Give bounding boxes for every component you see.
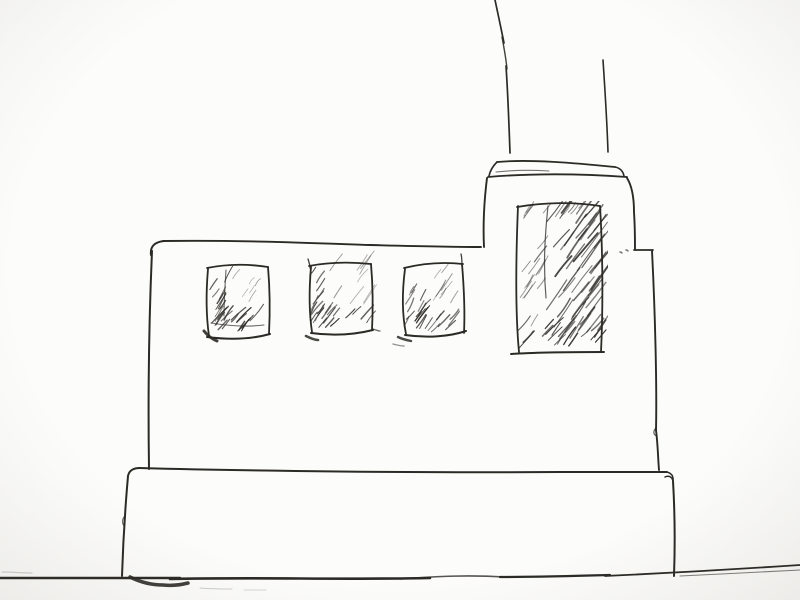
window2-hatch-bottom xyxy=(311,301,375,327)
hatch-stroke xyxy=(437,311,444,320)
ground-line-overlap xyxy=(400,576,505,579)
ground-line-far-right xyxy=(605,565,800,576)
building-right-wall xyxy=(652,251,656,430)
cap-right-edge xyxy=(615,167,624,176)
hatch-stroke xyxy=(436,280,446,296)
base-left-edge xyxy=(122,476,128,576)
tower-right-edge xyxy=(627,178,635,249)
ground-smudge-left xyxy=(2,572,32,573)
chimney-right-line xyxy=(603,60,608,152)
hatch-stroke xyxy=(250,285,255,293)
hatch-stroke xyxy=(210,279,217,290)
hatch-stroke xyxy=(556,186,578,217)
window1-corner-blob xyxy=(204,331,217,341)
ground-line-right xyxy=(500,575,610,577)
hatch-stroke xyxy=(446,321,456,330)
hatch-stroke xyxy=(572,266,592,293)
hatch-stroke xyxy=(255,279,260,286)
hatch-stroke xyxy=(573,302,586,321)
hatch-stroke xyxy=(442,264,449,273)
hatch-stroke xyxy=(564,268,580,291)
hatch-stroke xyxy=(249,278,254,285)
window2-corner-blob xyxy=(306,336,318,340)
hatch-stroke xyxy=(591,261,611,290)
window1-left-edge xyxy=(207,269,209,336)
stray-dot-1 xyxy=(620,252,622,253)
hatch-stroke xyxy=(334,286,342,298)
hatch-stroke xyxy=(537,278,545,289)
window2-left-edge xyxy=(310,267,312,332)
window3-bottom-edge xyxy=(405,331,466,337)
hatch-stroke xyxy=(364,285,377,305)
base-foot-smudge-1 xyxy=(200,588,232,589)
window1-hatch-upper-light xyxy=(233,270,261,302)
big-window-hatch-upper-dark xyxy=(555,182,616,276)
hatch-stroke xyxy=(250,304,264,321)
hatch-stroke xyxy=(555,256,571,276)
cap-inner-line xyxy=(496,170,549,172)
hatch-stroke xyxy=(525,275,535,288)
big-window-hatch-bottom-band xyxy=(518,316,606,348)
hatch-stroke xyxy=(564,327,576,345)
hatch-stroke xyxy=(233,270,240,279)
window1-bottom-edge xyxy=(207,334,270,339)
hatch-stroke xyxy=(242,289,248,297)
hatch-stroke xyxy=(451,291,458,303)
base-top-left-corner xyxy=(128,468,140,476)
cap-bottom-edge xyxy=(488,174,627,177)
window3-hatch-upper-light xyxy=(433,264,458,303)
hatch-stroke xyxy=(367,311,376,323)
window2-bottom-tick xyxy=(373,329,380,331)
base-right-edge xyxy=(673,481,675,576)
hatch-stroke xyxy=(224,306,233,320)
sketch-page xyxy=(0,0,800,600)
hatch-stroke xyxy=(547,192,568,221)
window2-hatch-upper-light xyxy=(330,251,377,304)
outline-strokes xyxy=(0,0,800,590)
hatch-stroke xyxy=(213,289,219,297)
hatch-stroke xyxy=(554,230,570,247)
big-window-bottom-edge xyxy=(511,352,604,354)
window3-under-mark xyxy=(393,344,404,346)
hatch-stroke xyxy=(518,316,530,331)
hatch-stroke xyxy=(361,305,373,319)
window1-right-edge xyxy=(268,267,270,334)
hatch-stroke xyxy=(587,296,602,316)
hatch-stroke xyxy=(547,280,567,310)
window3-hatch-bottom xyxy=(406,306,459,332)
cap-left-edge xyxy=(489,162,497,176)
stray-dot-2 xyxy=(626,250,628,251)
hatch-stroke xyxy=(543,325,553,336)
window1-hatch-left xyxy=(210,266,233,328)
hatch-stroke xyxy=(350,287,363,304)
chimney-left-line-upper xyxy=(495,0,504,43)
hatch-stroke xyxy=(358,269,368,282)
chimney-left-line-lower xyxy=(506,66,510,153)
hatch-stroke xyxy=(522,261,531,272)
big-window-inner-line xyxy=(545,206,548,298)
hatch-stroke xyxy=(526,202,534,213)
tower-left-edge xyxy=(484,178,487,247)
window2-right-edge xyxy=(371,264,373,330)
window3-top-edge xyxy=(404,263,463,268)
base-top-edge xyxy=(139,468,667,472)
hatch-stroke xyxy=(531,314,538,326)
hatch-stroke xyxy=(581,328,590,337)
window1-top-edge xyxy=(207,265,268,268)
hatch-stroke xyxy=(421,299,430,310)
hatch-stroke xyxy=(523,331,533,342)
hatch-stroke xyxy=(580,308,594,325)
building-left-wall xyxy=(149,251,152,469)
ground-line-mid xyxy=(170,578,430,579)
window2-bottom-edge xyxy=(311,330,373,335)
window3-right-edge xyxy=(462,264,464,333)
window3-corner-blob xyxy=(398,337,411,341)
big-window-hatch-left-column xyxy=(520,205,548,326)
cap-top-edge xyxy=(497,161,615,167)
hatch-stroke xyxy=(420,289,426,300)
hatch-stroke xyxy=(435,269,442,278)
base-corner-curl xyxy=(660,472,673,481)
hatch-stroke xyxy=(361,251,375,268)
sketch-canvas xyxy=(0,0,800,600)
hatch-stroke xyxy=(319,318,327,327)
window1-inner-horizontal xyxy=(211,323,264,326)
building-top-edge xyxy=(163,241,481,247)
